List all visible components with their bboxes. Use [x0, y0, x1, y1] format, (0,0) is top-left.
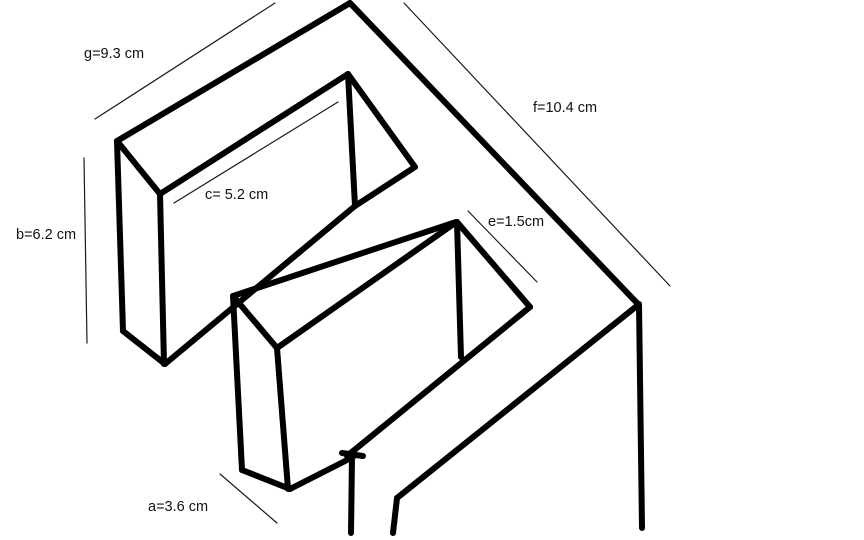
dimension-label-g: g=9.3 cm	[84, 46, 144, 62]
lower-box-outer-left-vertical	[233, 296, 242, 470]
dimension-label-a: a=3.6 cm	[148, 499, 208, 515]
lower-box-bottom-left-edge	[242, 470, 290, 489]
plate-front-left-vertical	[393, 498, 397, 533]
plate-right-top-edge	[350, 3, 638, 304]
upper-box-outer-top-edge	[117, 3, 350, 141]
dim-line-b	[84, 158, 87, 343]
dimension-label-f: f=10.4 cm	[533, 100, 597, 116]
lower-box-inner-left-vertical	[277, 348, 288, 489]
upper-box-front-top-left-edge	[117, 141, 160, 194]
lower-box-back-top-edge	[233, 222, 456, 296]
lower-box-right-top-edge	[457, 222, 530, 307]
upper-box-inner-right-edge	[348, 74, 415, 167]
dimension-label-e: e=1.5cm	[488, 214, 544, 230]
drawing-canvas: g=9.3 cm f=10.4 cm c= 5.2 cm b=6.2 cm e=…	[0, 0, 864, 540]
upper-box-inner-corner-vertical	[348, 74, 355, 206]
plate-front-top-edge	[397, 305, 638, 498]
dim-line-f	[404, 3, 670, 286]
upper-box-outer-left-vertical	[117, 141, 123, 331]
base-front-corner-vertical	[351, 456, 352, 533]
lower-box-front-top-left-edge	[233, 296, 277, 348]
upper-box-inner-floor-right-edge	[355, 167, 415, 206]
lower-box-inner-corner-vertical	[457, 222, 461, 357]
upper-box-inner-left-vertical	[160, 194, 164, 364]
upper-box-bottom-left-edge	[123, 331, 165, 364]
plate-right-vertical-edge	[639, 304, 642, 528]
isometric-sketch-svg	[0, 0, 864, 540]
lower-box-inner-top-edge	[277, 223, 455, 348]
lower-box-right-floor-edge	[347, 307, 530, 456]
upper-box-inner-top-edge	[160, 74, 348, 194]
base-bottom-left-edge	[290, 457, 353, 489]
dimension-label-b: b=6.2 cm	[16, 227, 76, 243]
dimension-label-c: c= 5.2 cm	[205, 187, 268, 203]
